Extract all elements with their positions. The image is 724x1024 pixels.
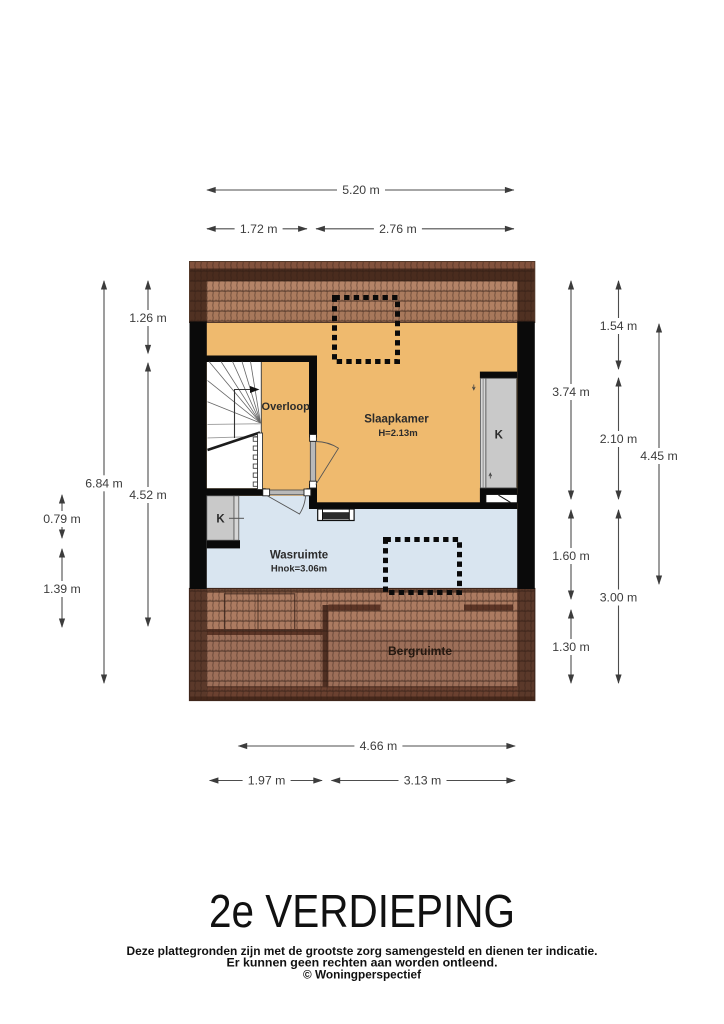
svg-text:Er kunnen geen rechten aan wor: Er kunnen geen rechten aan worden ontlee… — [227, 958, 498, 970]
svg-text:1.39 m: 1.39 m — [43, 582, 81, 596]
svg-text:4.52 m: 4.52 m — [129, 488, 167, 502]
svg-text:H=2.13m: H=2.13m — [378, 428, 417, 439]
svg-text:1.30 m: 1.30 m — [552, 640, 590, 654]
svg-text:K: K — [495, 430, 504, 442]
svg-text:1.60 m: 1.60 m — [552, 549, 590, 563]
svg-text:3.74 m: 3.74 m — [552, 385, 590, 399]
svg-text:Bergruimte: Bergruimte — [388, 644, 452, 658]
svg-text:4.45 m: 4.45 m — [640, 449, 678, 463]
svg-text:6.84 m: 6.84 m — [85, 477, 123, 491]
svg-text:4.66 m: 4.66 m — [360, 739, 398, 753]
svg-text:1.54 m: 1.54 m — [600, 319, 638, 333]
svg-text:5.20 m: 5.20 m — [342, 183, 380, 197]
svg-text:Slaapkamer: Slaapkamer — [364, 414, 429, 426]
svg-text:© Woningperspectief: © Woningperspectief — [303, 970, 421, 982]
svg-text:3.00 m: 3.00 m — [600, 591, 638, 605]
svg-text:2e VERDIEPING: 2e VERDIEPING — [209, 885, 515, 937]
svg-text:3.13 m: 3.13 m — [404, 774, 442, 788]
svg-text:1.72 m: 1.72 m — [240, 222, 278, 236]
svg-text:Wasruimte: Wasruimte — [270, 550, 328, 562]
svg-text:Overloop: Overloop — [262, 401, 311, 413]
svg-text:1.97 m: 1.97 m — [248, 774, 286, 788]
svg-text:1.26 m: 1.26 m — [129, 311, 167, 325]
svg-text:Deze plattegronden zijn met de: Deze plattegronden zijn met de grootste … — [127, 946, 598, 958]
svg-text:2.76 m: 2.76 m — [379, 222, 417, 236]
svg-text:0.79 m: 0.79 m — [43, 512, 81, 526]
svg-text:Hnok=3.06m: Hnok=3.06m — [271, 564, 327, 575]
svg-text:K: K — [216, 514, 225, 526]
svg-text:2.10 m: 2.10 m — [600, 432, 638, 446]
